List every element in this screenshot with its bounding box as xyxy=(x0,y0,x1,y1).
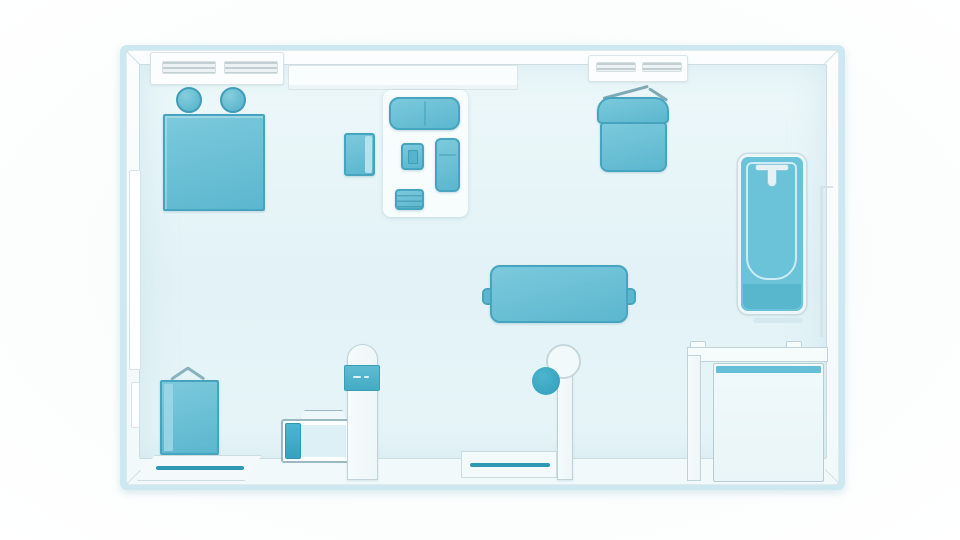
loveseat-sofa xyxy=(389,97,460,130)
bath-mat xyxy=(753,318,803,323)
window-sill-top xyxy=(288,65,518,90)
side-chair xyxy=(401,143,424,170)
shower-tray-edge xyxy=(716,366,821,373)
bathtub-foot-section xyxy=(743,284,801,309)
bathroom-wall-line xyxy=(820,187,823,337)
wall-control-panel xyxy=(344,365,380,391)
bathroom-partition-horizontal xyxy=(687,347,828,362)
stool xyxy=(532,367,560,395)
chair-seat xyxy=(600,122,667,172)
bathroom-wall-tick xyxy=(820,186,833,188)
shower-tray xyxy=(713,363,824,482)
tote-bag xyxy=(160,380,219,455)
chaise xyxy=(435,138,460,192)
vent-grille-icon xyxy=(224,61,278,74)
floor-plan-scene xyxy=(0,0,960,540)
balcony-threshold-line xyxy=(156,466,244,470)
chair-backrest xyxy=(597,97,669,124)
armchair xyxy=(344,133,375,176)
ottoman-table xyxy=(395,189,424,210)
faucet-spout xyxy=(767,170,777,187)
bed xyxy=(163,114,265,211)
pillow-right xyxy=(220,87,246,113)
panel-indicator xyxy=(364,376,369,378)
vent-grille-icon xyxy=(642,62,682,72)
vent-grille-icon xyxy=(596,62,636,72)
vent-grille-icon xyxy=(162,61,216,74)
dining-table xyxy=(490,265,628,323)
bathroom-partition-vertical xyxy=(687,355,701,481)
entry-threshold-line xyxy=(470,463,550,467)
left-wall-window xyxy=(129,170,141,370)
pillow-left xyxy=(176,87,202,113)
panel-indicator xyxy=(353,376,361,378)
cabinet-door-panel xyxy=(285,423,301,459)
left-wall-door xyxy=(131,382,140,428)
